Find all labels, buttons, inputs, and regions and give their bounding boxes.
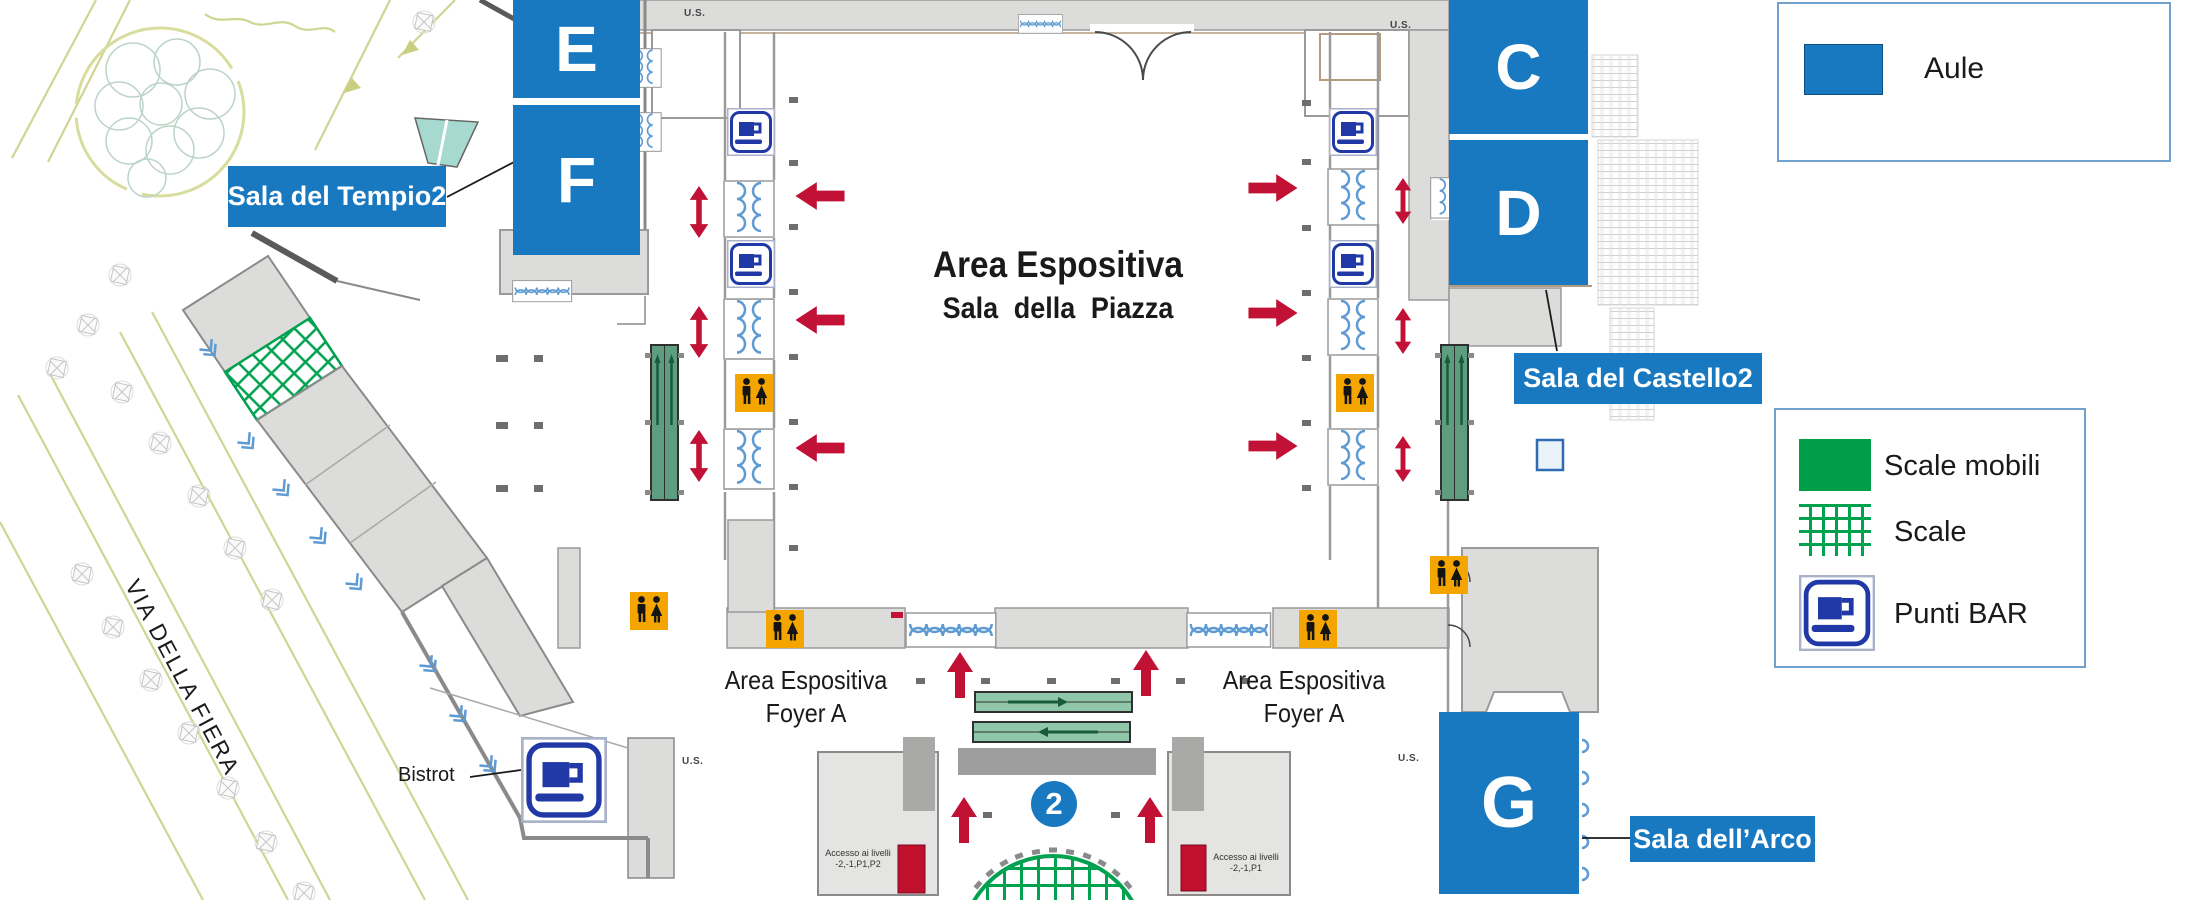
room-d-label: D <box>1495 176 1541 250</box>
restroom-icon <box>1299 610 1337 648</box>
coffee-cup-icon-legend <box>1799 575 1875 651</box>
legend-services: Scale mobili Scale Punti BAR <box>1774 408 2086 668</box>
aule-swatch <box>1804 44 1883 95</box>
restroom-icon <box>735 374 773 412</box>
escalator-right <box>1435 345 1474 500</box>
us-label-bottom-left: U.S. <box>682 756 703 767</box>
room-c: C <box>1449 0 1588 134</box>
red-arrow-updown <box>686 306 712 358</box>
access-levels-right: Accesso ai livelli -2,-1,P1 <box>1210 852 1282 875</box>
spiral-stair <box>961 848 1145 900</box>
access-block-left <box>898 845 925 893</box>
room-e-label: E <box>555 12 598 86</box>
restroom-icon <box>630 592 668 630</box>
coffee-cup-icon <box>1329 108 1377 156</box>
room-g: G <box>1439 712 1579 894</box>
room-d: D <box>1449 140 1588 285</box>
escalator-left <box>645 345 684 500</box>
foyer-line1: Area Espositiva <box>716 664 896 697</box>
coffee-cup-icon-bistrot <box>521 737 607 823</box>
platform-bar <box>958 748 1156 775</box>
red-arrow-right <box>1248 172 1298 204</box>
legend-punti-bar-label: Punti BAR <box>1894 598 2028 631</box>
coffee-cup-icon <box>727 240 775 288</box>
access-line2: -2,-1,P1 <box>1210 863 1282 874</box>
legend-scale-mobili-label: Scale mobili <box>1884 450 2040 483</box>
foyer-line2: Foyer A <box>716 697 896 730</box>
piazza-title: Area Espositiva <box>923 244 1193 286</box>
red-arrow-left <box>795 304 845 336</box>
room-g-label: G <box>1481 762 1537 844</box>
red-arrow-updown <box>1390 308 1416 354</box>
red-arrow-up <box>1134 797 1166 843</box>
legend-aule-label: Aule <box>1924 52 1984 86</box>
restroom-icon <box>1430 556 1468 594</box>
piazza-subtitle: Sala della Piazza <box>923 292 1193 326</box>
red-arrow-left <box>795 180 845 212</box>
access-block-right <box>1181 845 1206 891</box>
room-c-label: C <box>1495 30 1541 104</box>
us-label-top-right: U.S. <box>1390 20 1411 31</box>
red-arrow-updown <box>686 186 712 238</box>
scale-swatch <box>1799 504 1871 556</box>
red-arrow-up <box>1130 650 1162 696</box>
left-diagonal-wing <box>183 0 516 612</box>
room-f-label: F <box>557 143 596 217</box>
restroom-icon <box>766 610 804 648</box>
foyer-a-right: Area Espositiva Foyer A <box>1214 664 1394 730</box>
us-label-bottom-right: U.S. <box>1398 753 1419 764</box>
access-line2: -2,-1,P1,P2 <box>820 859 896 870</box>
bistrot-label: Bistrot <box>398 764 455 787</box>
floor-plan-canvas: E F C D G Sala del Tempio2 Sala del Cast… <box>0 0 2190 900</box>
coffee-cup-icon <box>727 108 775 156</box>
access-line1: Accesso ai livelli <box>820 848 896 859</box>
red-arrow-right <box>1248 297 1298 329</box>
label-text: Sala dell’Arco <box>1633 824 1812 855</box>
label-sala-del-castello2: Sala del Castello2 <box>1514 353 1762 404</box>
label-text: Sala del Castello2 <box>1523 363 1753 394</box>
legend-aule: Aule <box>1777 2 2171 162</box>
label-sala-dell-arco: Sala dell’Arco <box>1630 816 1815 862</box>
level-2-badge: 2 <box>1031 781 1077 827</box>
coffee-cup-icon <box>1329 240 1377 288</box>
label-text: Sala del Tempio2 <box>228 181 447 212</box>
red-arrow-updown <box>686 430 712 482</box>
room-e: E <box>513 0 640 98</box>
red-arrow-updown <box>1390 436 1416 482</box>
red-arrow-left <box>795 432 845 464</box>
red-arrow-up <box>944 652 976 698</box>
garden-circle <box>76 28 244 197</box>
access-line1: Accesso ai livelli <box>1210 852 1282 863</box>
escalators-horizontal <box>973 692 1132 742</box>
lift-box <box>1537 440 1563 470</box>
scale-mobili-swatch <box>1799 439 1871 491</box>
foyer-line2: Foyer A <box>1214 697 1394 730</box>
red-arrow-up <box>948 797 980 843</box>
room-f: F <box>513 105 640 255</box>
restroom-icon <box>1336 374 1374 412</box>
legend-scale-label: Scale <box>1894 516 1967 549</box>
foyer-a-left: Area Espositiva Foyer A <box>716 664 896 730</box>
red-arrow-right <box>1248 430 1298 462</box>
red-arrow-updown <box>1390 178 1416 224</box>
us-label-top-left: U.S. <box>684 8 705 19</box>
access-levels-left: Accesso ai livelli -2,-1,P1,P2 <box>820 848 896 871</box>
path-arrows <box>344 40 419 93</box>
foyer-line1: Area Espositiva <box>1214 664 1394 697</box>
label-sala-del-tempio2: Sala del Tempio2 <box>228 166 446 227</box>
